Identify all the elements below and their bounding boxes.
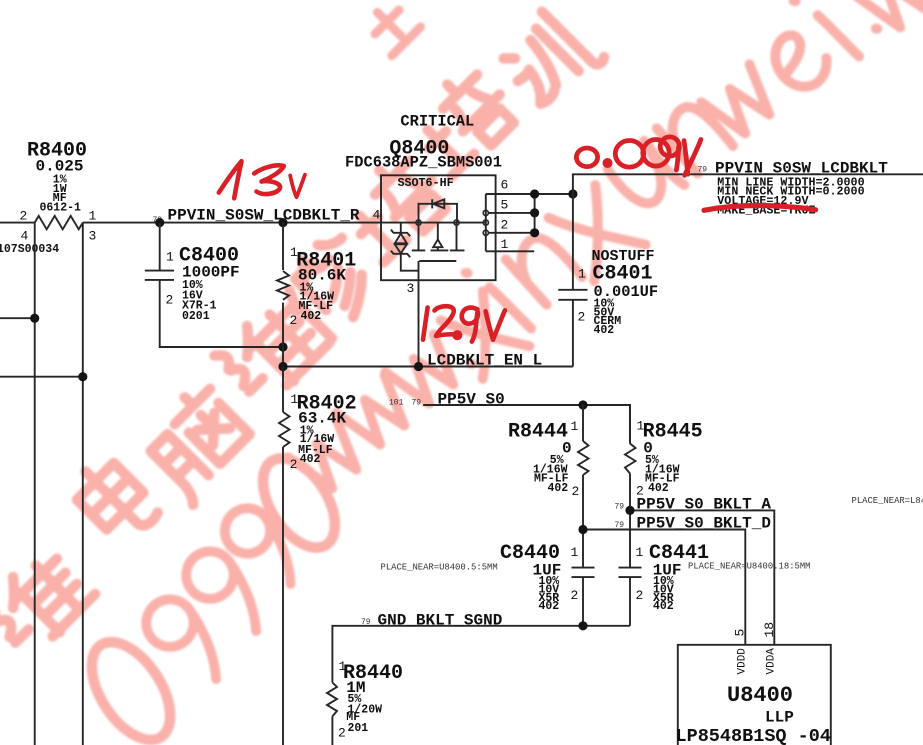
svg-text:PP5V_S0: PP5V_S0 [438,391,505,409]
svg-text:GND_BKLT_SGND: GND_BKLT_SGND [378,612,503,630]
svg-text:PPVIN_S0SW_LCDBKLT_R: PPVIN_S0SW_LCDBKLT_R [168,207,360,225]
svg-text:R8444: R8444 [508,420,568,443]
svg-text:79: 79 [361,618,371,627]
svg-text:LLP: LLP [765,709,794,727]
svg-text:2: 2 [290,457,298,472]
svg-text:0201: 0201 [182,310,210,323]
svg-text:4: 4 [373,208,381,223]
svg-text:2: 2 [338,726,346,741]
svg-text:3: 3 [407,281,415,296]
svg-text:VDDD: VDDD [736,648,748,675]
svg-text:1: 1 [571,545,579,560]
svg-text:101: 101 [389,399,404,408]
svg-text:1: 1 [571,419,579,434]
svg-text:1: 1 [89,209,97,224]
svg-text:402: 402 [653,600,674,613]
svg-text:79: 79 [615,521,625,530]
svg-text:VDDA: VDDA [766,648,778,675]
svg-text:1: 1 [636,545,644,560]
svg-text:2: 2 [571,588,579,603]
svg-text:2: 2 [636,588,644,603]
svg-text:2: 2 [290,313,298,328]
svg-text:402: 402 [594,324,615,337]
svg-text:107S00034: 107S00034 [0,243,59,256]
svg-text:SSOT6-HF: SSOT6-HF [398,176,454,190]
svg-text:2: 2 [166,293,174,308]
svg-text:4: 4 [21,229,29,244]
svg-text:1: 1 [166,250,174,265]
svg-text:LCDBKLT_EN_L: LCDBKLT_EN_L [427,351,542,369]
svg-text:6: 6 [501,177,509,192]
svg-text:402: 402 [648,482,669,495]
svg-text:201: 201 [348,722,369,735]
svg-text:PLACE_NEAR=L840: PLACE_NEAR=L840 [852,496,923,506]
svg-text:2: 2 [572,484,580,499]
svg-text:402: 402 [539,600,560,613]
svg-text:3: 3 [89,229,97,244]
svg-text:2: 2 [20,209,28,224]
svg-text:5: 5 [733,629,748,637]
svg-text:LP8548B1SQ -04: LP8548B1SQ -04 [676,726,831,745]
svg-text:CRITICAL: CRITICAL [400,113,474,131]
svg-text:79: 79 [615,503,625,512]
svg-text:402: 402 [548,482,569,495]
svg-text:2: 2 [578,310,586,325]
svg-text:PP5V_S0_BKLT_A: PP5V_S0_BKLT_A [637,495,772,513]
svg-text:U8400: U8400 [727,683,793,708]
svg-text:1: 1 [578,267,586,282]
svg-text:PLACE_NEAR=U8400.5:5MM: PLACE_NEAR=U8400.5:5MM [381,562,498,572]
svg-text:PP5V_S0_BKLT_D: PP5V_S0_BKLT_D [637,514,771,532]
svg-text:FDC638APZ_SBMS001: FDC638APZ_SBMS001 [345,154,502,172]
svg-text:402: 402 [300,453,321,466]
svg-text:2: 2 [501,218,509,233]
svg-text:1: 1 [501,237,509,252]
svg-text:18: 18 [762,622,777,638]
svg-text:79: 79 [698,166,708,175]
svg-text:79: 79 [412,399,422,408]
svg-text:5: 5 [501,197,509,212]
svg-text:402: 402 [301,310,322,323]
svg-text:PLACE_NEAR=U8400.18:5MM: PLACE_NEAR=U8400.18:5MM [688,562,811,572]
svg-text:0612-1: 0612-1 [40,202,82,215]
